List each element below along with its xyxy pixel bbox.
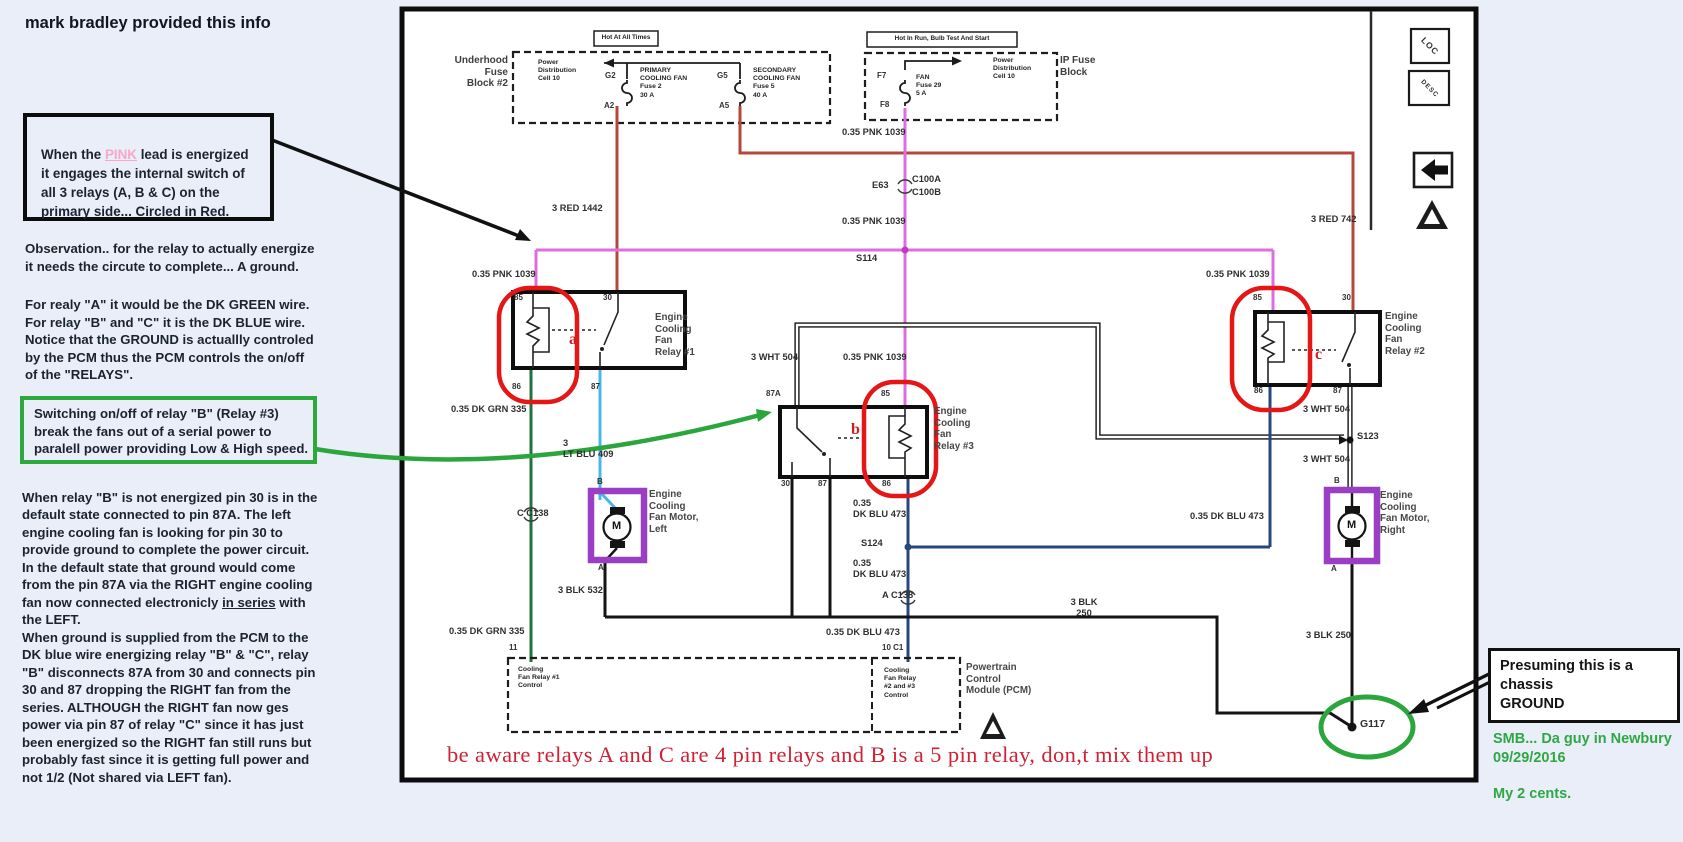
motor-left-name: Engine Cooling Fan Motor, Left [649, 489, 699, 535]
relay-c-pin-85: 85 [1253, 293, 1262, 302]
wire-label-dkblu-3: 0.35 DK BLU 473 [826, 627, 900, 638]
wire-label-red742: 3 RED 742 [1311, 214, 1356, 225]
underhood-fuse-block-label: Underhood Fuse Block #2 [436, 55, 508, 90]
motor-left-pin-b: B [597, 477, 603, 486]
motor-right-name: Engine Cooling Fan Motor, Right [1380, 490, 1430, 536]
wire-label-blk250-h: 3 BLK 250 [1062, 597, 1106, 618]
pcm-right-label: Cooling Fan Relay #2 and #3 Control [884, 667, 916, 700]
wire-label-pnk-top: 0.35 PNK 1039 [842, 127, 906, 138]
chassis-ground-note-box: Presuming this is a chassis GROUND [1488, 648, 1680, 723]
connector-c100b: C100B [912, 187, 941, 198]
wire-label-wht-c-lower: 3 WHT 504 [1303, 454, 1350, 465]
connector-a-c138: A C138 [882, 590, 913, 601]
smb-two-cents: My 2 cents. [1493, 785, 1571, 804]
wire-label-red1442: 3 RED 1442 [552, 203, 603, 214]
pink-note-box: When the PINK lead is energized it engag… [23, 113, 274, 221]
junction-s123-label: S123 [1357, 431, 1379, 442]
g117-ground-dot [1348, 723, 1357, 732]
ground-g117-label: G117 [1360, 719, 1385, 730]
relay-b-pin-85: 85 [881, 389, 890, 398]
relay-b-pin-87: 87 [818, 479, 827, 488]
red-warning-text: be aware relays A and C are 4 pin relays… [447, 742, 1213, 768]
relay-b-pin-86: 86 [882, 479, 891, 488]
motor-left-m: M [612, 520, 621, 532]
relay-a-red-letter: a [569, 331, 577, 349]
diagram-frame [402, 9, 1476, 780]
pcm-pin-11: 11 [509, 643, 517, 652]
wire-label-pnk-b: 0.35 PNK 1039 [843, 352, 907, 363]
connector-e63: E63 [872, 180, 889, 191]
connector-c100a: C100A [912, 174, 941, 185]
pcm-name: Powertrain Control Module (PCM) [966, 662, 1031, 697]
annotated-wiring-diagram-page: mark bradley provided this info When the… [0, 0, 1683, 842]
relay-c-pin-86: 86 [1254, 386, 1263, 395]
pink-word: PINK [105, 147, 137, 162]
relay-a-name: Engine Cooling Fan Relay #1 [655, 312, 695, 358]
motor-right-pin-a: A [1331, 564, 1337, 573]
pin-f8: F8 [880, 100, 889, 109]
relay-b [780, 407, 927, 477]
wire-label-pnk-left: 0.35 PNK 1039 [472, 269, 536, 280]
relay-b-name: Engine Cooling Fan Relay #3 [934, 406, 974, 452]
junction-s124-label: S124 [861, 538, 883, 549]
relay-c-red-letter: c [1315, 346, 1322, 364]
relay-c-pin-87: 87 [1333, 386, 1342, 395]
smb-signature: SMB... Da guy in Newbury 09/29/2016 [1493, 730, 1672, 768]
relay-b-pin-30: 30 [781, 479, 790, 488]
wire-label-dkblu-1: 0.35 DK BLU 473 [853, 498, 906, 519]
connector-c-c138: C C138 [517, 508, 549, 519]
motor-right-m: M [1347, 519, 1356, 531]
wire-label-ltblu: 3 LT BLU 409 [563, 438, 613, 459]
primary-fan-fuse-label: PRIMARY COOLING FAN Fuse 2 30 A [640, 67, 687, 100]
s123-junction [1347, 437, 1354, 444]
wire-label-pnk-mid: 0.35 PNK 1039 [842, 216, 906, 227]
wire-label-dkblu-right: 0.35 DK BLU 473 [1190, 511, 1264, 522]
power-distribution-cell-1: Power Distribution Cell 10 [538, 59, 576, 84]
green-note-text: Switching on/off of relay "B" (Relay #3)… [24, 400, 313, 458]
long-note-b: with the LEFT. When ground is supplied f… [22, 595, 315, 785]
s114-junction [902, 247, 909, 254]
ip-fuse-block-label: IP Fuse Block [1060, 55, 1095, 78]
hot-in-run-label: Hot In Run, Bulb Test And Start [867, 35, 1017, 42]
pin-a2: A2 [604, 101, 614, 110]
wire-label-blk250-v: 3 BLK 250 [1306, 630, 1351, 641]
wire-label-wht-b: 3 WHT 504 [751, 352, 798, 363]
relay-a-pin-87: 87 [591, 382, 600, 391]
relay-a-pin-85: 85 [514, 293, 523, 302]
pink-note-pre: When the [41, 147, 105, 162]
relay-a-pin-30: 30 [603, 293, 612, 302]
relay-b-long-note: When relay "B" is not energized pin 30 i… [22, 471, 362, 786]
wire-label-pnk-right: 0.35 PNK 1039 [1206, 269, 1270, 280]
pin-f7: F7 [877, 71, 886, 80]
wire-label-dkgrn-upper: 0.35 DK GRN 335 [451, 404, 526, 415]
pin-g2: G2 [605, 71, 616, 80]
fan-fuse-label: FAN Fuse 29 5 A [916, 74, 941, 99]
relay-a-pin-86: 86 [512, 382, 521, 391]
s124-junction [905, 544, 912, 551]
observation-note: Observation.. for the relay to actually … [25, 240, 355, 275]
secondary-fan-fuse-label: SECONDARY COOLING FAN Fuse 5 40 A [753, 67, 800, 100]
long-note-underlined: in series [222, 595, 276, 610]
hot-at-all-times-label: Hot At All Times [594, 34, 658, 41]
green-note-box: Switching on/off of relay "B" (Relay #3)… [20, 396, 317, 464]
relay-wires-note: For realy "A" it would be the DK GREEN w… [25, 296, 355, 384]
wire-label-dkblu-2: 0.35 DK BLU 473 [853, 558, 906, 579]
relay-c-name: Engine Cooling Fan Relay #2 [1385, 311, 1425, 357]
power-distribution-cell-2: Power Distribution Cell 10 [993, 57, 1031, 82]
long-note-a: When relay "B" is not energized pin 30 i… [22, 490, 317, 610]
wire-label-dkgrn-lower: 0.35 DK GRN 335 [449, 626, 524, 637]
wire-label-blk532: 3 BLK 532 [558, 585, 603, 596]
relay-c-pin-30: 30 [1342, 293, 1351, 302]
pink-note-rest: it engages the internal switch of all 3 … [41, 166, 245, 219]
pin-a5: A5 [719, 101, 729, 110]
motor-left-pin-a: A [598, 563, 604, 572]
relay-b-pin-87a: 87A [766, 389, 781, 398]
pin-g5: G5 [717, 71, 728, 80]
pink-note-post: lead is energized [137, 147, 249, 162]
wire-label-wht-c-upper: 3 WHT 504 [1303, 404, 1350, 415]
motor-right-pin-b: B [1334, 476, 1340, 485]
junction-s114-label: S114 [856, 253, 877, 264]
pcm-left-label: Cooling Fan Relay #1 Control [518, 666, 560, 691]
pcm-pin-10-c1: 10 C1 [882, 643, 903, 652]
relay-b-red-letter: b [851, 421, 860, 439]
page-title: mark bradley provided this info [25, 14, 271, 33]
